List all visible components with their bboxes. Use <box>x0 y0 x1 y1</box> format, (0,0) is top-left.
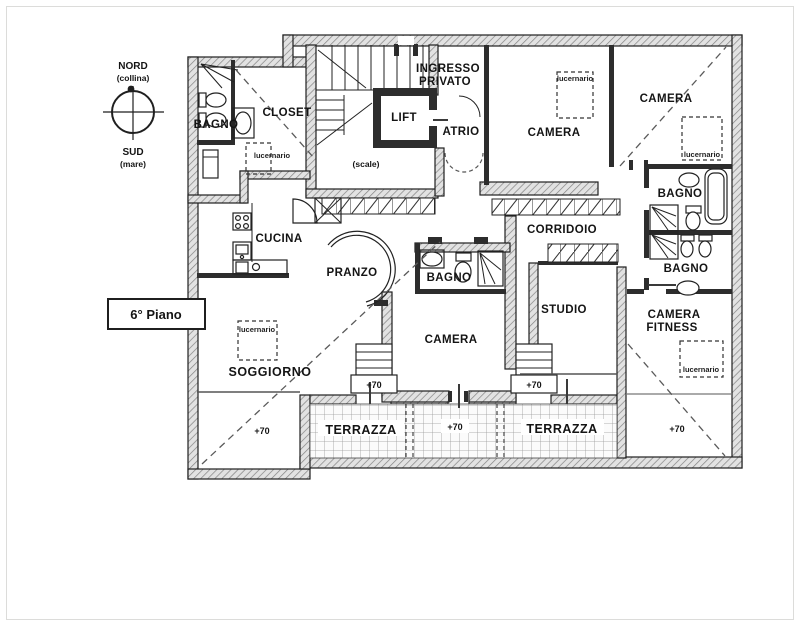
room-label-camera-top-right: CAMERA <box>640 93 693 105</box>
level-marker: +70 <box>526 380 541 390</box>
room-label-bagno-nw: BAGNO <box>194 119 239 131</box>
level-marker: +70 <box>254 426 269 436</box>
room-label-studio: STUDIO <box>541 304 587 316</box>
bathroom-right-upper-fixtures <box>650 169 727 231</box>
room-label-ingresso-2: PRIVATO <box>419 76 471 88</box>
floorplan-page: lucernario lucernario lucernario lucerna… <box>0 0 800 625</box>
room-label-fitness-2: FITNESS <box>646 322 697 334</box>
floor-plan-drawing: lucernario lucernario lucernario lucerna… <box>0 0 800 625</box>
compass-south-label: SUD <box>122 147 143 158</box>
skylight-label: lucernario <box>254 151 291 160</box>
room-label-fitness-1: CAMERA <box>648 309 701 321</box>
floor-badge-label: 6° Piano <box>130 307 181 322</box>
room-label-corridoio: CORRIDOIO <box>527 224 597 236</box>
skylight-label: lucernario <box>684 150 721 159</box>
room-label-pranzo: PRANZO <box>327 267 378 279</box>
skylight-label: lucernario <box>557 74 594 83</box>
room-label-lift: LIFT <box>391 112 417 124</box>
compass-rose: NORD (collina) SUD (mare) <box>103 61 164 169</box>
room-label-cucina: CUCINA <box>255 233 302 245</box>
room-label-bagno-right-upper: BAGNO <box>658 188 703 200</box>
room-label-closet: CLOSET <box>262 107 311 119</box>
room-label-bagno-right-lower: BAGNO <box>664 263 709 275</box>
skylight-label: lucernario <box>683 365 720 374</box>
room-label-atrio: ATRIO <box>443 126 480 138</box>
room-label-ingresso-1: INGRESSO <box>416 63 480 75</box>
floor-badge: 6° Piano <box>108 299 205 329</box>
room-label-terrazza-west: TERRAZZA <box>325 423 396 437</box>
compass-north-note: (collina) <box>117 73 150 83</box>
room-label-terrazza-east: TERRAZZA <box>526 422 597 436</box>
room-label-soggiorno: SOGGIORNO <box>229 365 312 379</box>
level-marker: +70 <box>366 380 381 390</box>
room-label-camera-bottom: CAMERA <box>425 334 478 346</box>
room-label-camera-top-center: CAMERA <box>528 127 581 139</box>
room-label-bagno-center: BAGNO <box>427 272 472 284</box>
level-marker: +70 <box>447 422 462 432</box>
compass-north-dot <box>128 86 135 93</box>
level-marker: +70 <box>669 424 684 434</box>
room-label-scale: (scale) <box>353 159 380 169</box>
skylight-label: lucernario <box>239 325 276 334</box>
compass-north-label: NORD <box>118 61 147 72</box>
compass-south-note: (mare) <box>120 159 146 169</box>
